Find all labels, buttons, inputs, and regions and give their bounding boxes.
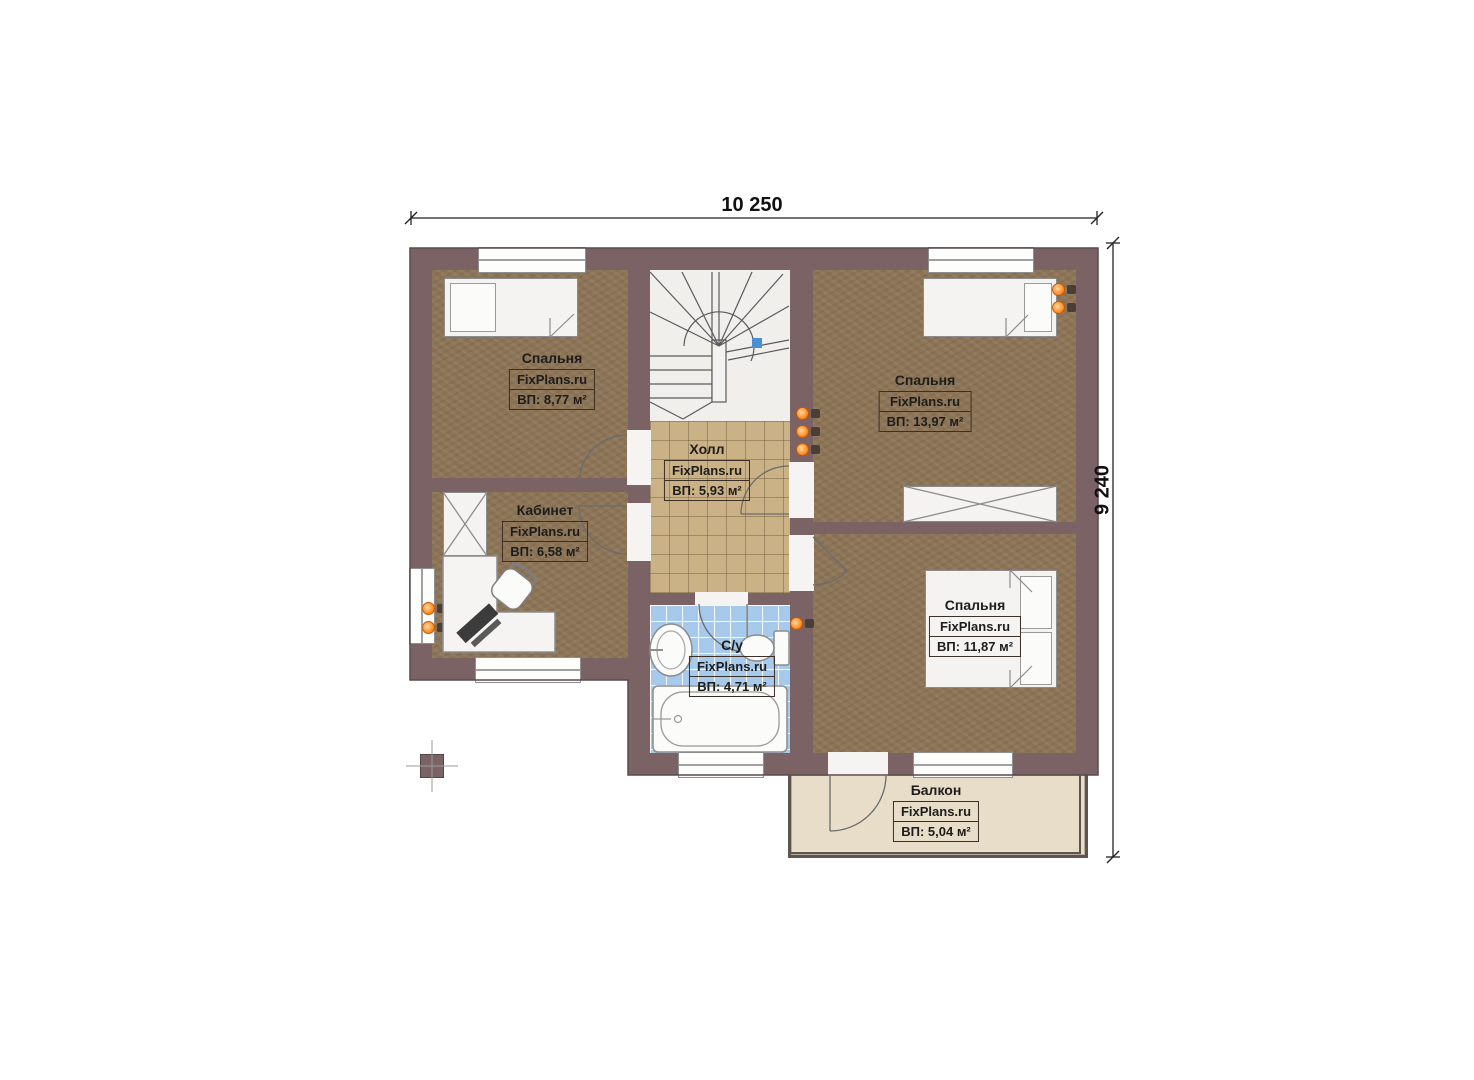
watermark-text: FixPlans.ru xyxy=(880,392,971,411)
room-label-bathroom: С/у FixPlans.ru ВП: 4,71 м² xyxy=(689,637,775,697)
room-name: С/у xyxy=(721,637,743,653)
radiator-icon xyxy=(1052,283,1076,296)
pillow xyxy=(1024,283,1052,332)
room-name: Кабинет xyxy=(517,502,574,518)
room-name: Спальня xyxy=(522,350,582,366)
room-label-bedroom-top-right: Спальня FixPlans.ru ВП: 13,97 м² xyxy=(879,372,972,432)
bed-single-top-left xyxy=(444,278,578,337)
room-name: Балкон xyxy=(911,782,962,798)
room-info-box: FixPlans.ru ВП: 8,77 м² xyxy=(509,369,595,410)
window-bedroom-top-right xyxy=(928,247,1034,273)
room-label-office: Кабинет FixPlans.ru ВП: 6,58 м² xyxy=(502,502,588,562)
watermark-text: FixPlans.ru xyxy=(690,657,774,676)
floor-plan-canvas: Спальня FixPlans.ru ВП: 8,77 м² Спальня … xyxy=(0,0,1474,1080)
room-area-label: ВП: 4,71 м² xyxy=(690,676,774,696)
room-label-bedroom-top-left: Спальня FixPlans.ru ВП: 8,77 м² xyxy=(509,350,595,410)
radiator-icon xyxy=(422,621,446,634)
room-area-label: ВП: 11,87 м² xyxy=(930,636,1020,656)
room-info-box: FixPlans.ru ВП: 13,97 м² xyxy=(879,391,972,432)
window-bedroom-top-left xyxy=(478,247,586,273)
room-name: Спальня xyxy=(895,372,955,388)
door-opening-office xyxy=(627,503,651,561)
room-area-label: ВП: 13,97 м² xyxy=(880,411,971,431)
door-opening-bedroom-bottom-right xyxy=(789,535,814,591)
radiator-icon xyxy=(796,425,820,438)
radiator-icon xyxy=(422,602,446,615)
room-info-box: FixPlans.ru ВП: 4,71 м² xyxy=(689,656,775,697)
room-area-label: ВП: 5,04 м² xyxy=(894,821,978,841)
wardrobe-office xyxy=(443,492,487,556)
room-label-hall: Холл FixPlans.ru ВП: 5,93 м² xyxy=(664,441,750,501)
wall-bedrooms-right-divider xyxy=(813,522,1076,534)
watermark-text: FixPlans.ru xyxy=(894,802,978,821)
room-label-balcony: Балкон FixPlans.ru ВП: 5,04 м² xyxy=(893,782,979,842)
room-name: Холл xyxy=(689,441,724,457)
pillow xyxy=(1020,576,1052,629)
room-area-label: ВП: 5,93 м² xyxy=(665,480,749,500)
door-opening-bedroom-top-left xyxy=(627,430,651,485)
room-info-box: FixPlans.ru ВП: 6,58 м² xyxy=(502,521,588,562)
bed-single-top-right xyxy=(923,278,1057,337)
pillow xyxy=(450,283,496,332)
room-name: Спальня xyxy=(945,597,1005,613)
wardrobe-bedroom-top-right xyxy=(903,486,1057,522)
dimension-height-label: 9 240 xyxy=(1092,465,1115,515)
radiator-icon xyxy=(1052,301,1076,314)
watermark-text: FixPlans.ru xyxy=(930,617,1020,636)
pillow xyxy=(1020,632,1052,685)
stairwell-floor xyxy=(650,270,790,421)
watermark-text: FixPlans.ru xyxy=(665,461,749,480)
room-info-box: FixPlans.ru ВП: 5,04 м² xyxy=(893,801,979,842)
door-opening-bathroom xyxy=(695,592,748,606)
window-office-bottom xyxy=(475,657,581,683)
window-bedroom-bottom-right xyxy=(913,752,1013,778)
room-info-box: FixPlans.ru ВП: 11,87 м² xyxy=(929,616,1021,657)
room-label-bedroom-bottom-right: Спальня FixPlans.ru ВП: 11,87 м² xyxy=(929,597,1021,657)
wall-bedroom1-office xyxy=(432,478,628,492)
radiator-icon xyxy=(796,443,820,456)
radiator-icon xyxy=(796,407,820,420)
radiator-icon xyxy=(790,617,814,630)
chimney-block xyxy=(420,754,444,778)
room-area-label: ВП: 6,58 м² xyxy=(503,541,587,561)
watermark-text: FixPlans.ru xyxy=(510,370,594,389)
window-bathroom xyxy=(678,752,764,778)
watermark-text: FixPlans.ru xyxy=(503,522,587,541)
door-opening-bedroom-top-right xyxy=(789,462,814,518)
room-area-label: ВП: 8,77 м² xyxy=(510,389,594,409)
door-opening-balcony xyxy=(828,752,888,776)
dimension-width-label: 10 250 xyxy=(721,194,782,217)
room-info-box: FixPlans.ru ВП: 5,93 м² xyxy=(664,460,750,501)
